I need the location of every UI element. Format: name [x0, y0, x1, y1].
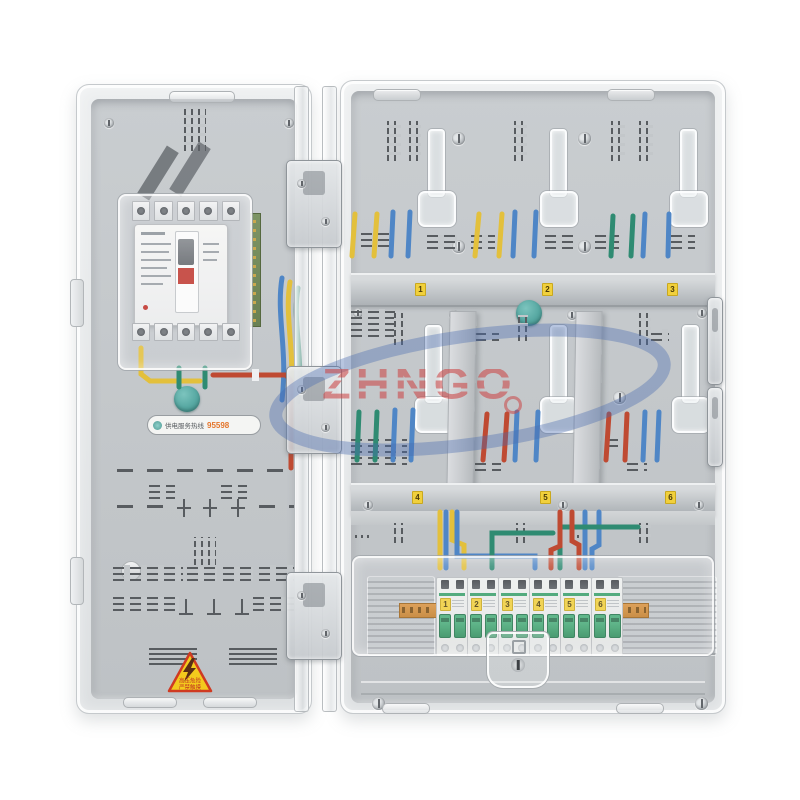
product-photo: 供电服务热线 95598 高压危险 严禁触摸: [0, 0, 800, 800]
watermark-registered-mark: [504, 396, 522, 414]
